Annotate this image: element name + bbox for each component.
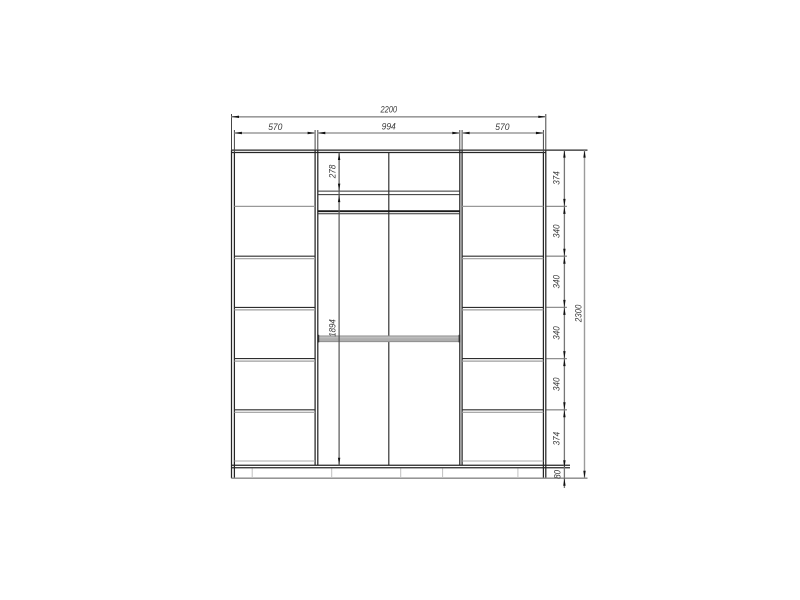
- svg-text:374: 374: [552, 171, 562, 185]
- svg-text:374: 374: [552, 432, 562, 446]
- svg-text:570: 570: [495, 121, 510, 132]
- svg-text:994: 994: [382, 121, 396, 132]
- svg-text:1894: 1894: [327, 319, 337, 337]
- svg-text:340: 340: [552, 274, 562, 288]
- svg-text:340: 340: [552, 377, 562, 391]
- svg-text:340: 340: [552, 325, 562, 339]
- svg-text:2200: 2200: [380, 103, 398, 114]
- svg-text:80: 80: [553, 469, 563, 479]
- svg-text:340: 340: [552, 224, 562, 238]
- svg-text:278: 278: [327, 164, 337, 179]
- svg-text:570: 570: [268, 121, 283, 132]
- svg-text:2300: 2300: [573, 304, 583, 323]
